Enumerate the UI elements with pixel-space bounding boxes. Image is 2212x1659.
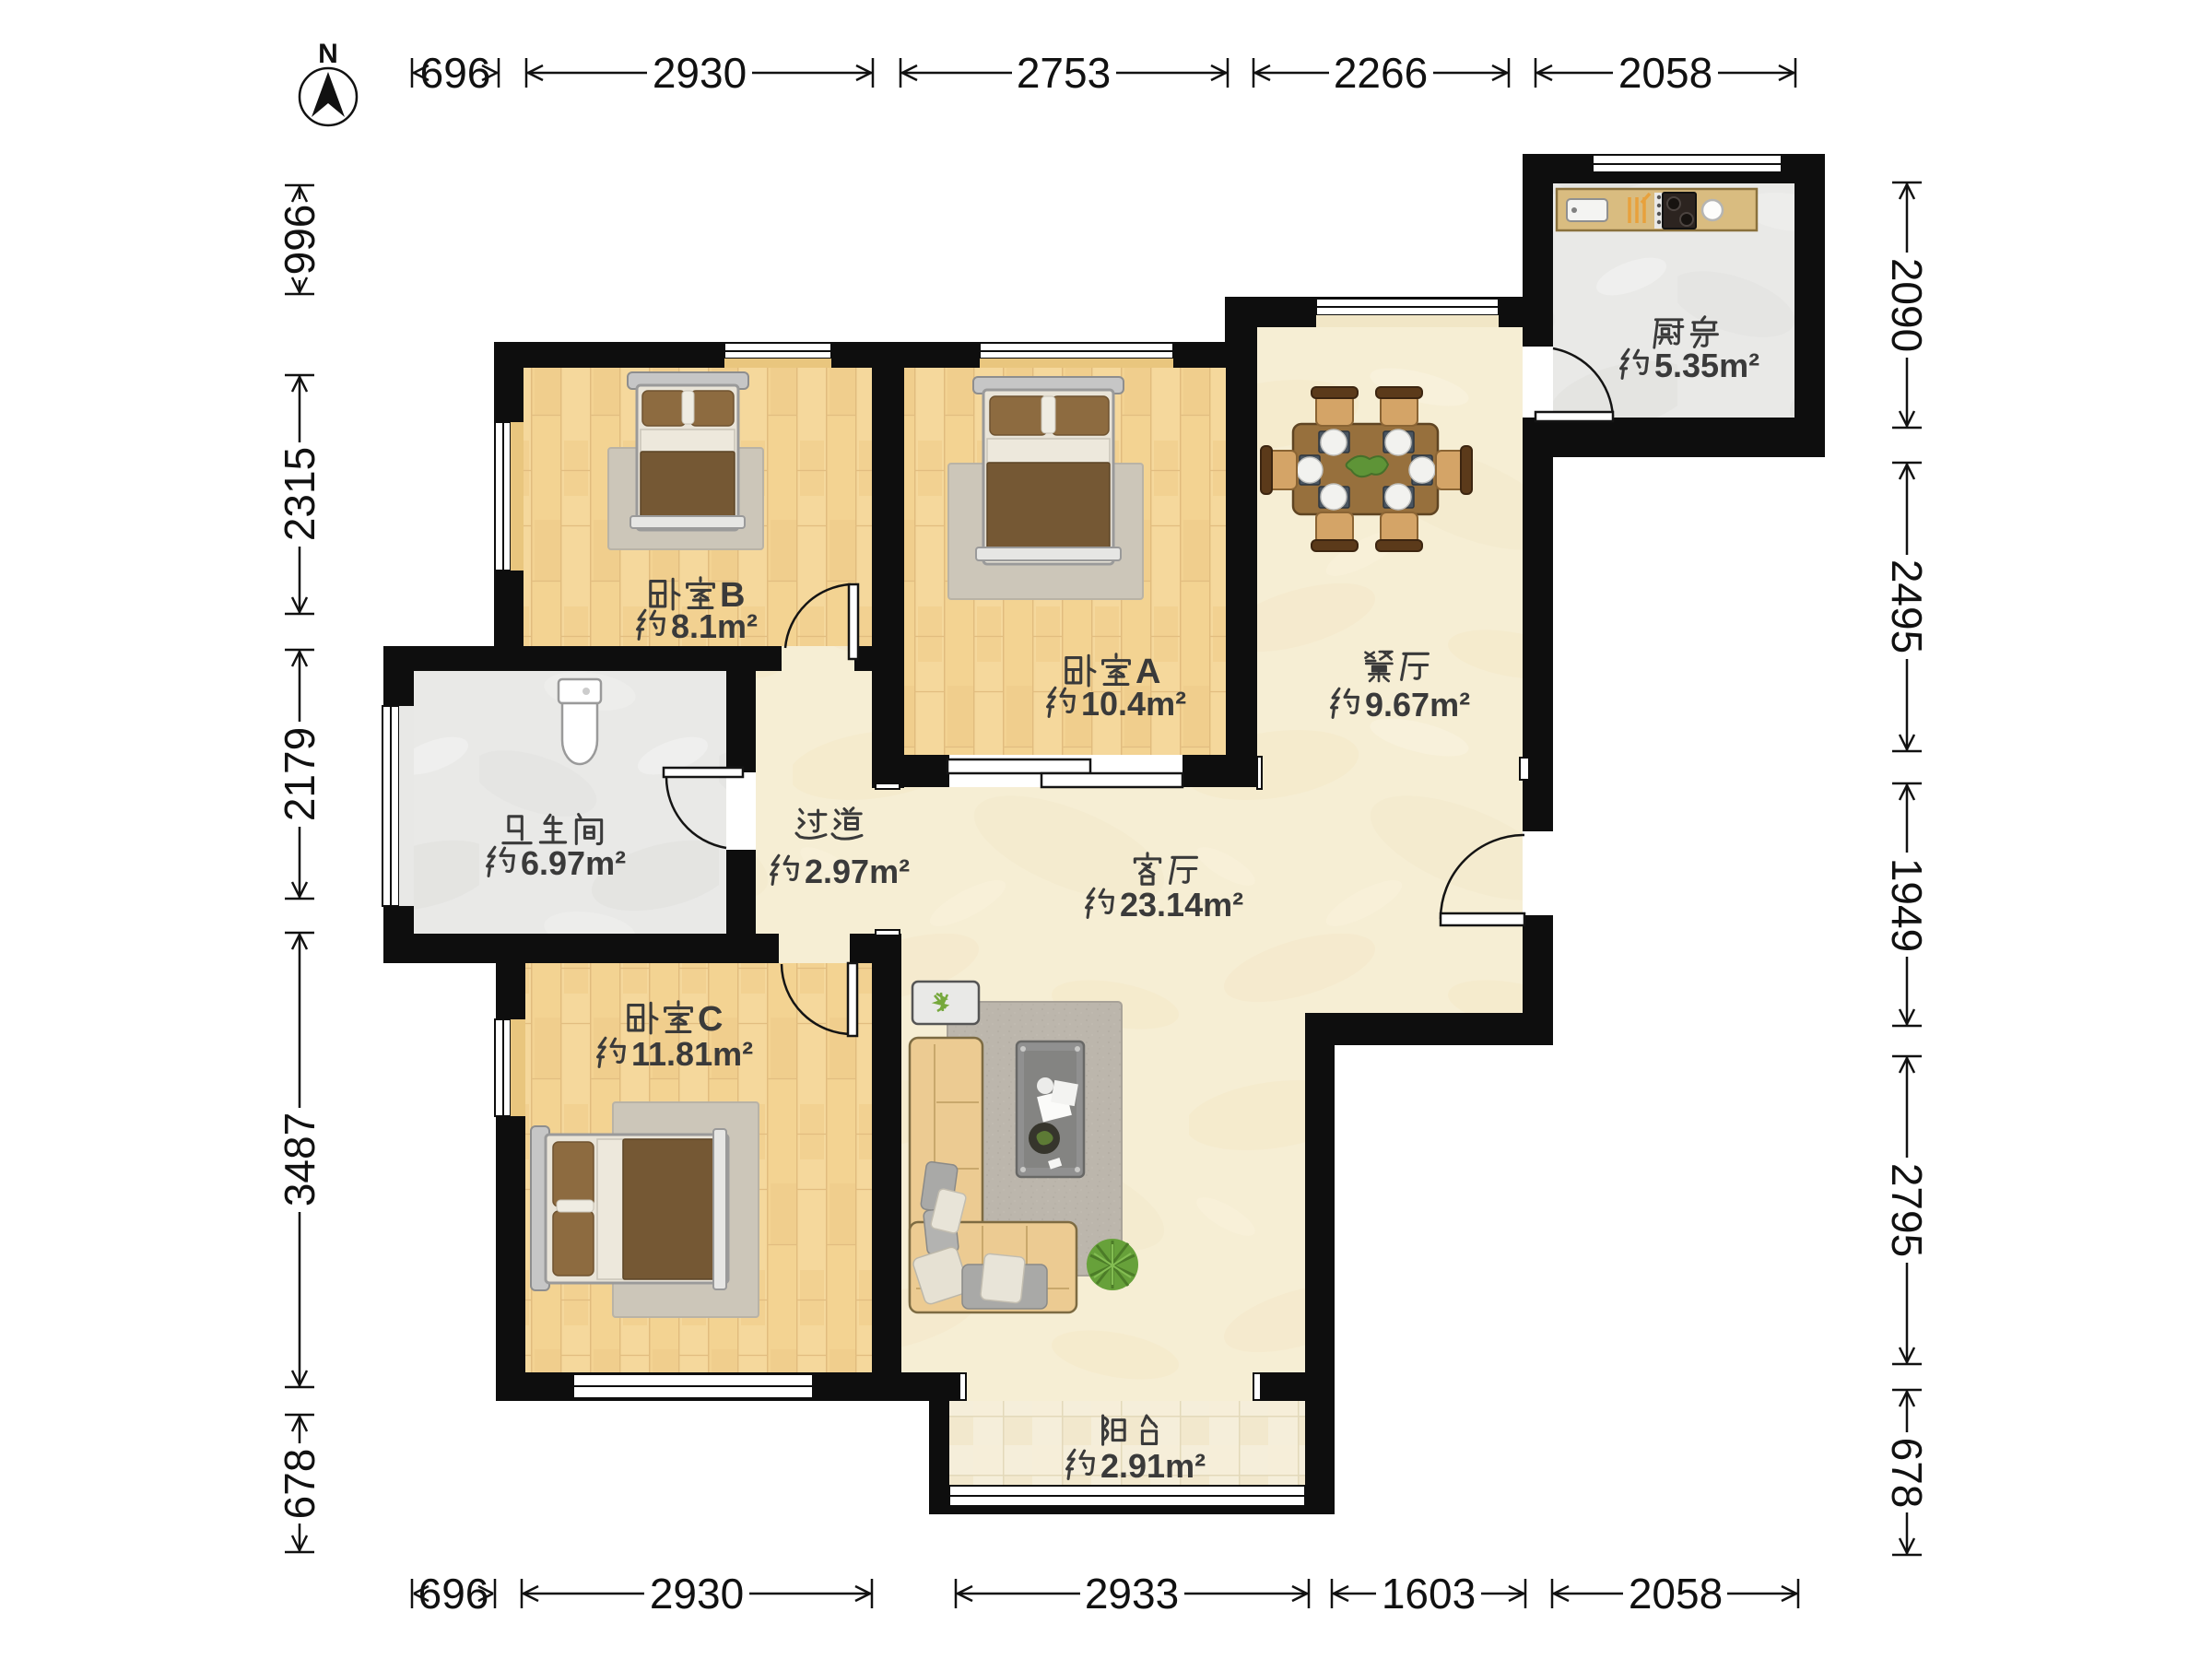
svg-text:6.97m²: 6.97m²: [521, 844, 626, 882]
svg-text:678: 678: [1883, 1438, 1931, 1509]
svg-text:2058: 2058: [1618, 49, 1712, 97]
svg-text:2753: 2753: [1017, 49, 1111, 97]
svg-text:1949: 1949: [1883, 858, 1931, 952]
svg-text:2179: 2179: [276, 727, 324, 821]
svg-text:996: 996: [276, 205, 324, 276]
svg-text:23.14m²: 23.14m²: [1120, 886, 1243, 924]
svg-text:2795: 2795: [1883, 1163, 1931, 1257]
svg-text:9.67m²: 9.67m²: [1365, 686, 1470, 724]
svg-text:2930: 2930: [653, 49, 747, 97]
svg-text:2058: 2058: [1629, 1570, 1723, 1618]
svg-text:678: 678: [276, 1449, 324, 1520]
svg-text:5.35m²: 5.35m²: [1654, 347, 1759, 384]
svg-text:2.91m²: 2.91m²: [1100, 1447, 1206, 1485]
svg-text:1603: 1603: [1382, 1570, 1476, 1618]
svg-text:2495: 2495: [1883, 559, 1931, 653]
svg-text:11.81m²: 11.81m²: [631, 1035, 753, 1073]
svg-text:2315: 2315: [276, 447, 324, 541]
svg-text:C: C: [698, 1000, 723, 1039]
svg-text:8.1m²: 8.1m²: [671, 607, 758, 645]
svg-text:2090: 2090: [1883, 258, 1931, 352]
svg-text:3487: 3487: [276, 1112, 324, 1206]
svg-text:N: N: [318, 39, 338, 69]
svg-text:2.97m²: 2.97m²: [805, 853, 910, 890]
svg-text:2933: 2933: [1085, 1570, 1179, 1618]
svg-text:696: 696: [420, 49, 491, 97]
svg-text:2266: 2266: [1334, 49, 1428, 97]
svg-text:10.4m²: 10.4m²: [1081, 685, 1186, 723]
svg-text:696: 696: [418, 1570, 489, 1618]
svg-text:2930: 2930: [650, 1570, 744, 1618]
